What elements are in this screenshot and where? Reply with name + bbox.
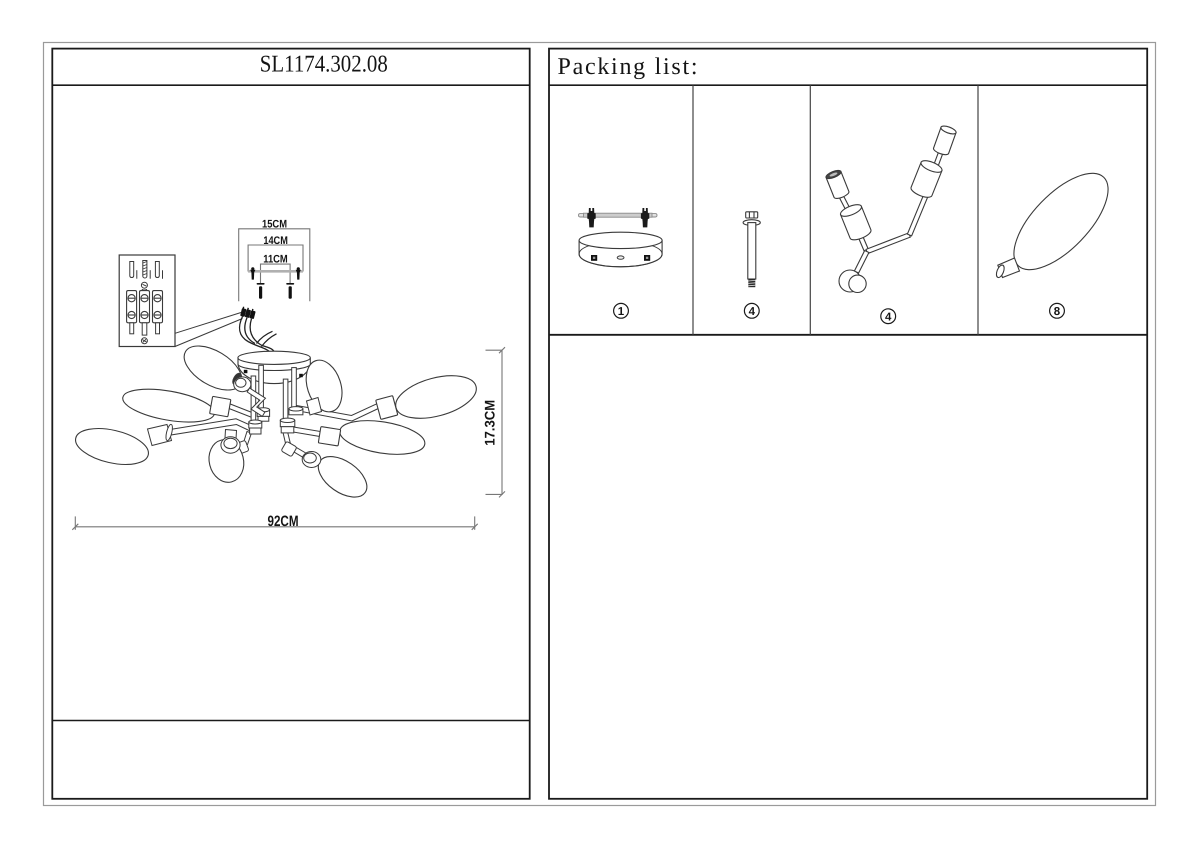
svg-text:4: 4 xyxy=(885,311,892,323)
svg-text:17.3CM: 17.3CM xyxy=(482,400,498,446)
svg-text:Packing list:: Packing list: xyxy=(558,54,698,80)
svg-text:SL1174.302.08: SL1174.302.08 xyxy=(260,52,388,78)
svg-text:8: 8 xyxy=(1054,306,1061,318)
svg-text:92CM: 92CM xyxy=(268,513,299,530)
svg-text:1: 1 xyxy=(618,306,625,318)
svg-text:4: 4 xyxy=(749,306,756,318)
